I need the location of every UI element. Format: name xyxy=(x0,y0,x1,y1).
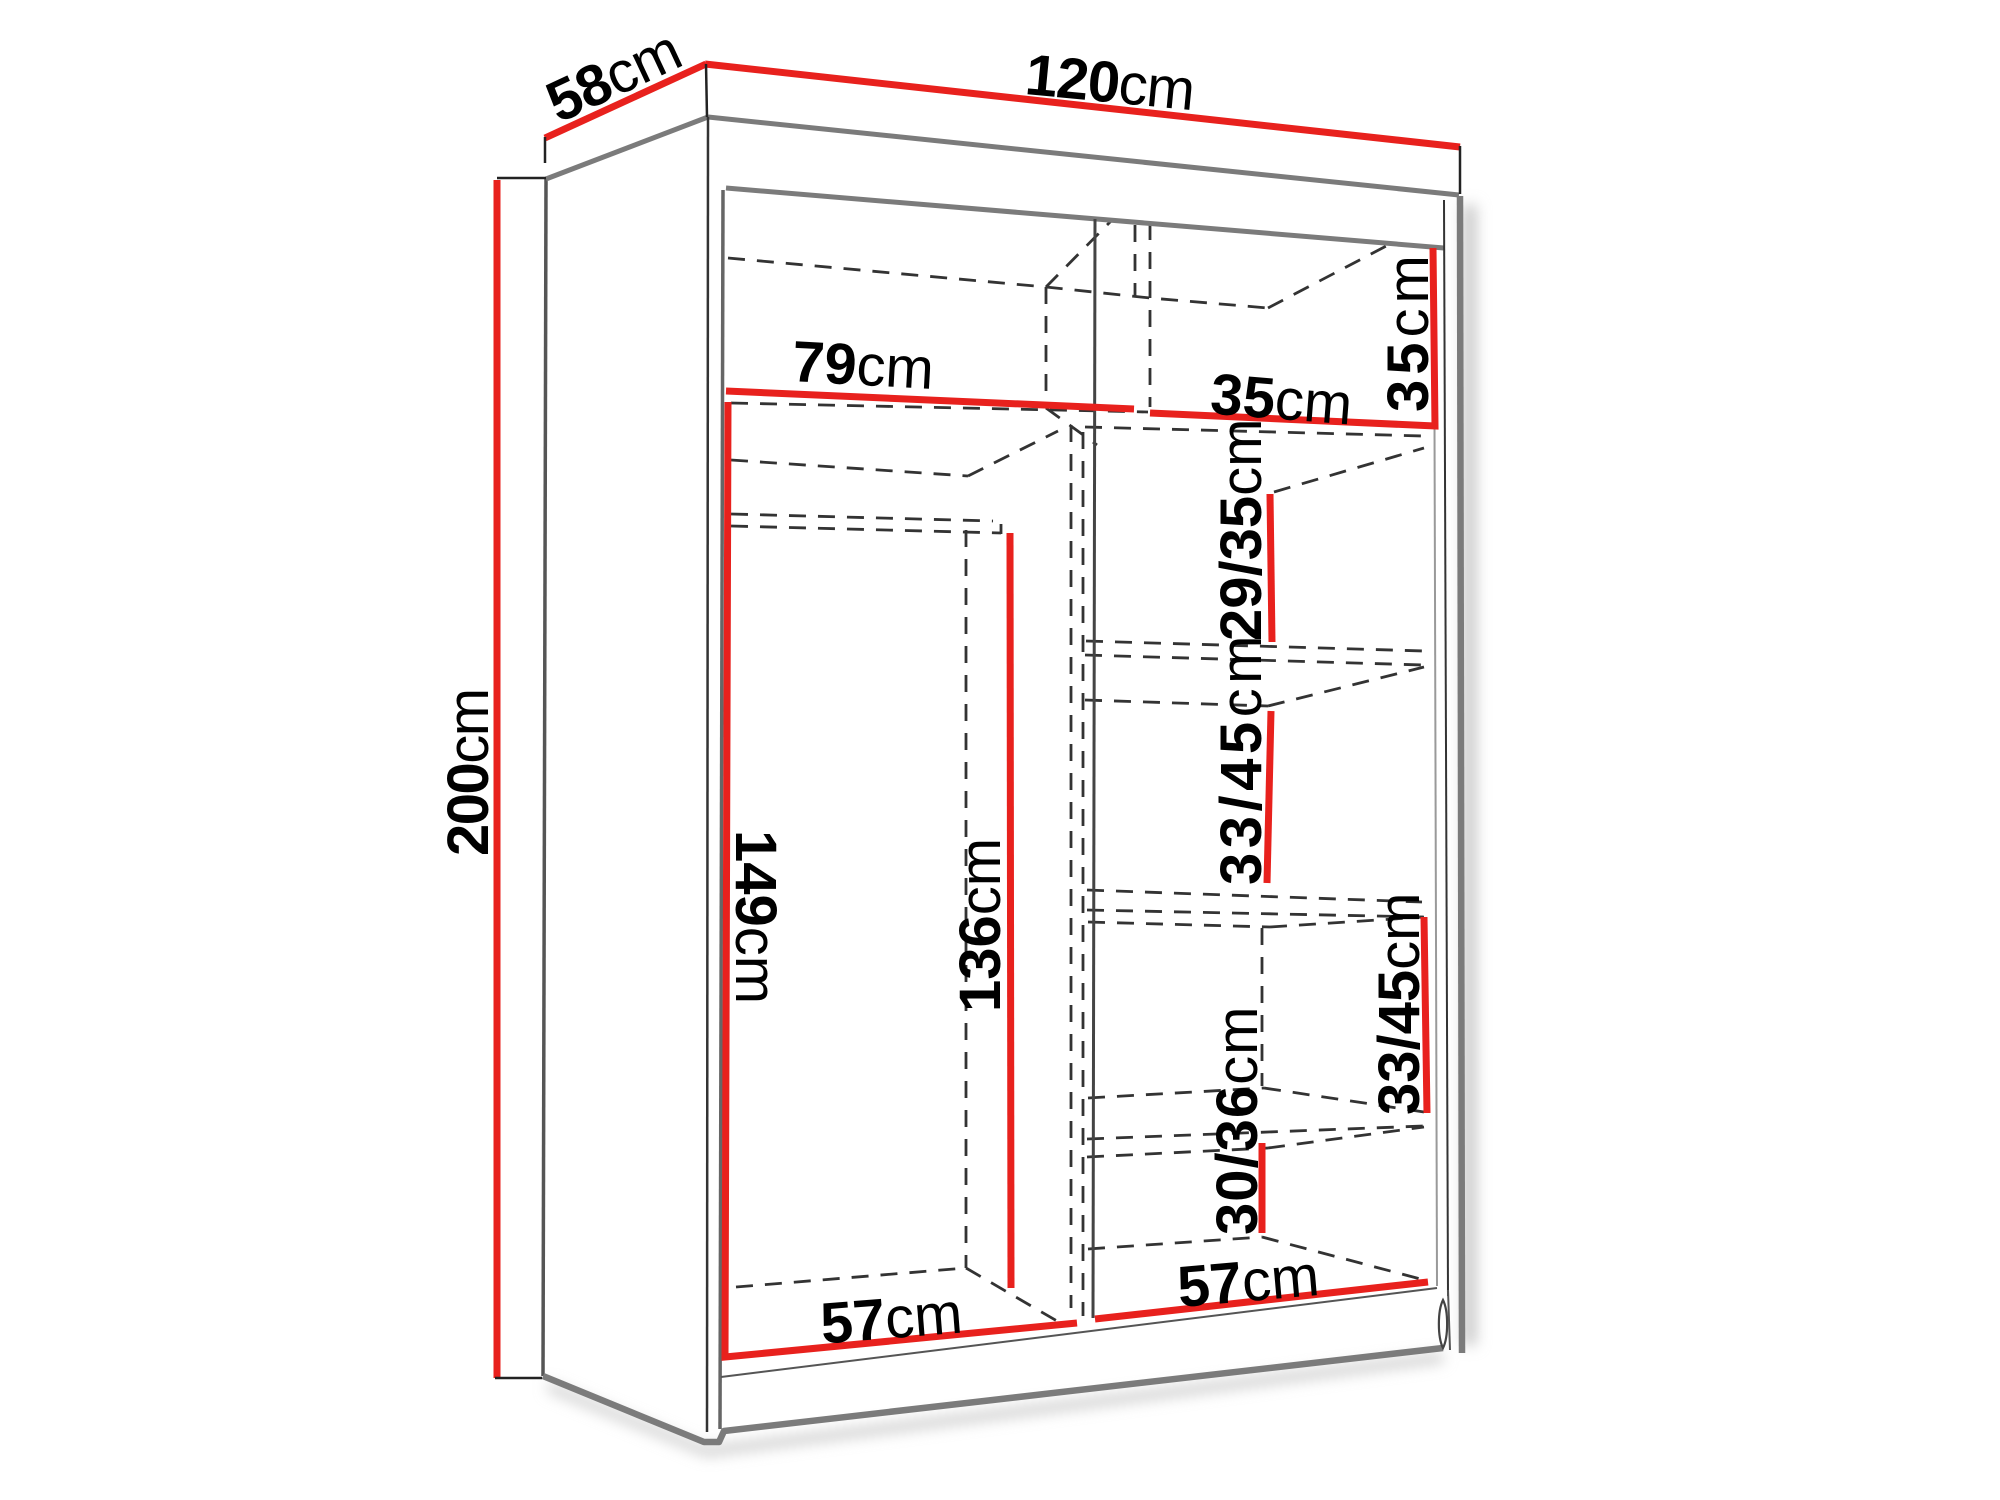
svg-text:57cm: 57cm xyxy=(1175,1243,1322,1320)
svg-text:35cm: 35cm xyxy=(1376,250,1441,412)
svg-text:29/35cm: 29/35cm xyxy=(1209,419,1274,641)
svg-text:79cm: 79cm xyxy=(790,329,935,402)
svg-text:136cm: 136cm xyxy=(948,838,1013,1012)
svg-text:57cm: 57cm xyxy=(818,1281,965,1357)
svg-text:149cm: 149cm xyxy=(723,830,788,1004)
svg-text:30/36cm: 30/36cm xyxy=(1205,1006,1270,1235)
svg-text:200cm: 200cm xyxy=(436,689,501,856)
svg-text:33/45cm: 33/45cm xyxy=(1367,893,1432,1115)
svg-text:33/45cm: 33/45cm xyxy=(1209,631,1274,885)
